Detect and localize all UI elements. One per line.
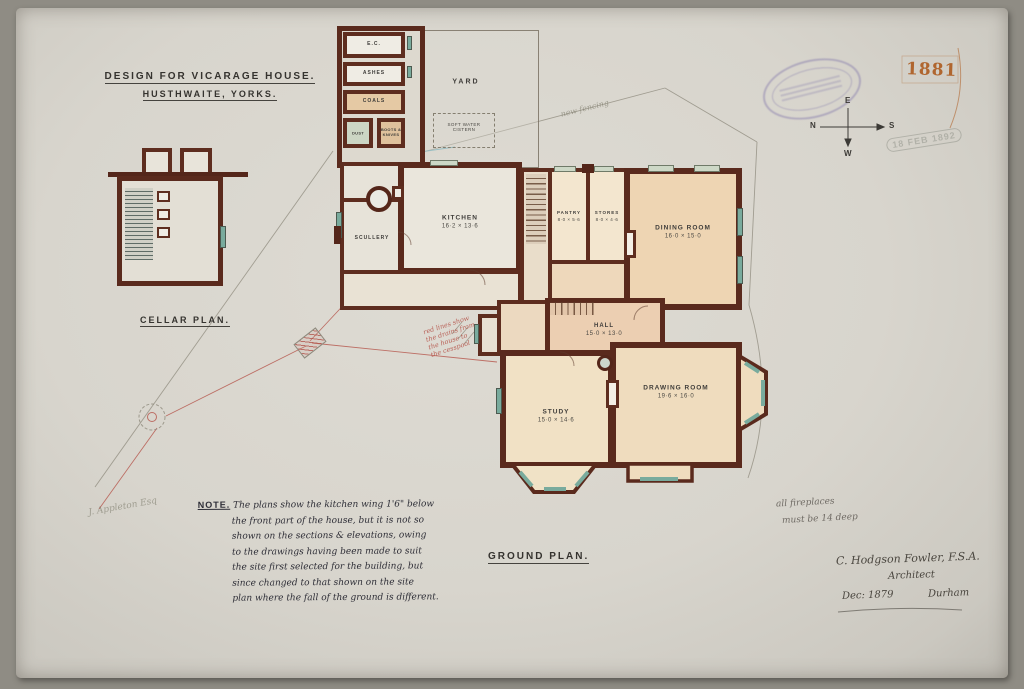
stores-name: STORES — [595, 210, 619, 215]
dining-window-top1-icon — [648, 165, 674, 172]
drawing-room — [610, 342, 742, 468]
cellar-plan-label: CELLAR PLAN. — [140, 315, 230, 327]
hall-stove-icon — [597, 355, 613, 371]
dining-window-top2-icon — [694, 165, 720, 172]
note-line-7: plan where the fall of the ground is dif… — [232, 590, 470, 607]
dining-label: DINING ROOM 16·0 × 15·0 — [655, 225, 711, 240]
hall-name: HALL — [594, 323, 614, 329]
study-name: STUDY — [542, 409, 569, 416]
entrance-lobby — [497, 300, 549, 356]
note-label: NOTE. — [198, 500, 231, 510]
study-fireplace-icon — [606, 380, 619, 408]
kitchen-label: KITCHEN 16·2 × 13·6 — [442, 215, 478, 230]
ashes-label: ASHES — [363, 70, 385, 76]
scullery-chimney — [334, 226, 341, 244]
scullery-label: SCULLERY — [355, 235, 390, 241]
pantry-label: PANTRY 8·0 × 5·6 — [557, 210, 581, 222]
pantry-name: PANTRY — [557, 210, 581, 215]
title-line1: DESIGN FOR VICARAGE HOUSE. — [105, 71, 316, 84]
title-block: DESIGN FOR VICARAGE HOUSE. HUSTHWAITE, Y… — [100, 66, 320, 102]
compass-s: S — [889, 121, 894, 130]
ec-label: E.C. — [367, 41, 381, 47]
note-line-1: NOTE. The plans show the kitchen wing 1'… — [198, 496, 470, 514]
hall-label: HALL 15·0 × 13·0 — [586, 323, 622, 337]
study-dims: 15·0 × 14·6 — [538, 418, 574, 424]
note-line-3: shown on the sections & elevations, owin… — [232, 528, 470, 545]
pantry-window-icon — [554, 166, 576, 172]
title-line2: HUSTHWAITE, YORKS. — [143, 89, 278, 101]
kitchen-dims: 16·2 × 13·6 — [442, 224, 478, 230]
pantry-chimney — [582, 164, 594, 173]
ashes-window-icon — [407, 66, 412, 78]
study-window-left-icon — [496, 388, 502, 414]
note-line-6: since changed to that shown on the site — [232, 575, 470, 592]
boots-label: BOOTS & KNIVES — [379, 127, 403, 137]
cellar-shelf-2 — [157, 209, 170, 220]
kitchen-window-icon — [430, 160, 458, 166]
passage — [340, 270, 522, 310]
kitchen-name: KITCHEN — [442, 215, 478, 222]
main-stairs — [526, 174, 546, 244]
drawing-label: DRAWING ROOM 19·6 × 16·0 — [643, 385, 708, 400]
cellar-window-icon — [220, 226, 226, 248]
stores-window-icon — [594, 166, 614, 172]
note-line-2: the front part of the house, but it is n… — [232, 513, 470, 530]
hall-dims: 15·0 × 13·0 — [586, 331, 622, 337]
cesspool-circle — [139, 404, 165, 430]
cistern-box: SOFT WATER CISTERN — [433, 113, 495, 148]
porch — [478, 314, 501, 356]
compass-n: N — [810, 121, 816, 130]
dining-window-right1-icon — [737, 208, 743, 236]
dust-label: DUST — [352, 131, 364, 136]
drawing-dims: 19·6 × 16·0 — [643, 394, 708, 400]
dining-name: DINING ROOM — [655, 225, 711, 232]
note-line-5: the site first selected for the building… — [232, 559, 470, 576]
signature-place: Durham — [928, 587, 969, 599]
cellar-shelf-3 — [157, 227, 170, 238]
architect-role: Architect — [888, 569, 935, 582]
kitchen-boiler-icon — [392, 186, 404, 200]
year-number: 1881 — [906, 59, 958, 81]
compass-e: E — [845, 96, 850, 105]
dining-dims: 16·0 × 15·0 — [655, 234, 711, 240]
drawing-name: DRAWING ROOM — [643, 385, 708, 392]
note-text-1: The plans show the kitchen wing 1'6" bel… — [233, 499, 434, 510]
stores-dims: 8·0 × 4·6 — [595, 217, 619, 222]
stores-label: STORES 8·0 × 4·6 — [595, 210, 619, 222]
study-label: STUDY 15·0 × 14·6 — [538, 409, 574, 424]
ec-window-icon — [407, 36, 412, 50]
compass-w: W — [844, 149, 852, 158]
cellar-shelf-1 — [157, 191, 170, 202]
cistern-label-2: CISTERN — [434, 127, 494, 132]
kitchen-range-icon — [366, 186, 392, 212]
note-block: NOTE. The plans show the kitchen wing 1'… — [198, 496, 471, 607]
pantry-dims: 8·0 × 5·6 — [557, 217, 581, 222]
coals-label: COALS — [363, 98, 386, 104]
signature-date: Dec: 1879 — [842, 589, 894, 602]
dining-window-right2-icon — [737, 256, 743, 284]
dining-fireplace-icon — [624, 230, 636, 258]
ground-plan-label: GROUND PLAN. — [488, 551, 589, 564]
cellar-stairs — [125, 188, 153, 260]
yard-label: YARD — [452, 79, 479, 86]
hall-steps — [550, 302, 594, 315]
note-line-4: to the drawings having been made to suit — [232, 544, 470, 561]
